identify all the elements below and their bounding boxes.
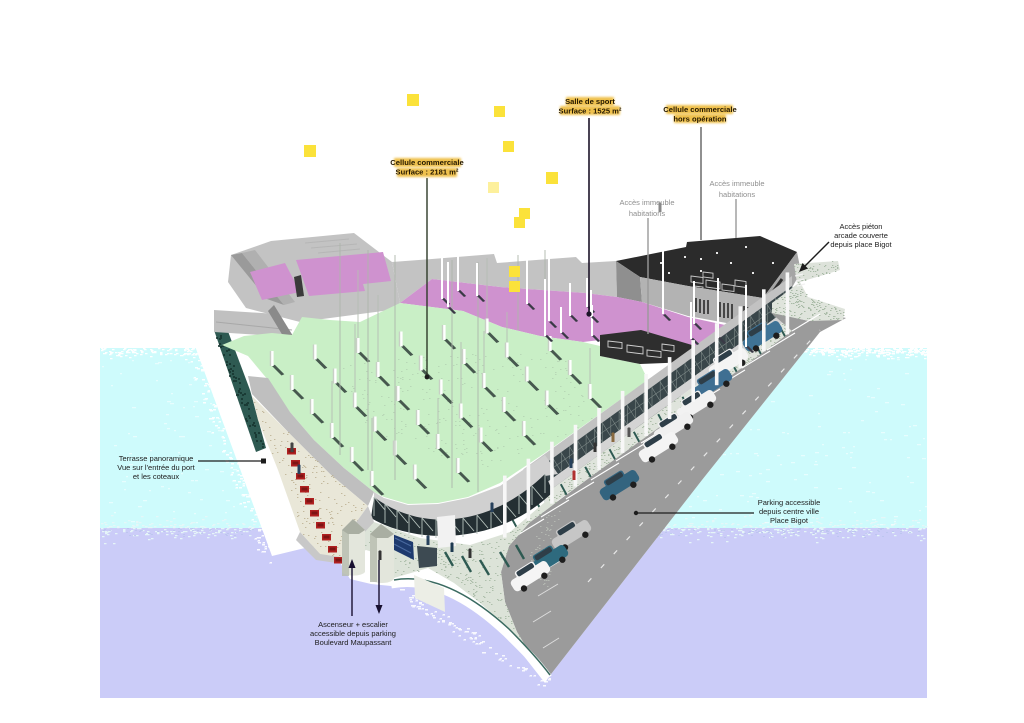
svg-text:Parking accessible: Parking accessible	[758, 498, 821, 507]
svg-text:Salle de sport: Salle de sport	[565, 97, 615, 106]
svg-text:depuis centre ville: depuis centre ville	[759, 507, 819, 516]
svg-text:Accès immeuble: Accès immeuble	[709, 179, 764, 188]
svg-text:Cellule commerciale: Cellule commerciale	[663, 105, 736, 114]
svg-text:Vue sur l'entrée du port: Vue sur l'entrée du port	[117, 463, 195, 472]
svg-text:Surface : 1525 m²: Surface : 1525 m²	[559, 107, 622, 116]
svg-text:Surface : 2181 m²: Surface : 2181 m²	[396, 168, 459, 177]
svg-text:Accès piéton: Accès piéton	[840, 222, 883, 231]
svg-text:Boulevard Maupassant: Boulevard Maupassant	[315, 638, 393, 647]
svg-text:depuis place Bigot: depuis place Bigot	[830, 240, 892, 249]
svg-text:arcade couverte: arcade couverte	[834, 231, 888, 240]
svg-text:Terrasse panoramique: Terrasse panoramique	[119, 454, 194, 463]
svg-text:habitations: habitations	[719, 190, 756, 199]
svg-text:et les coteaux: et les coteaux	[133, 472, 180, 481]
svg-text:Place Bigot: Place Bigot	[770, 516, 809, 525]
svg-text:hors opération: hors opération	[673, 115, 727, 124]
svg-text:accessible depuis parking: accessible depuis parking	[310, 629, 396, 638]
svg-text:Cellule commerciale: Cellule commerciale	[390, 158, 463, 167]
svg-text:Accès immeuble: Accès immeuble	[619, 198, 674, 207]
svg-text:habitations: habitations	[629, 209, 666, 218]
svg-text:Ascenseur + escalier: Ascenseur + escalier	[318, 620, 388, 629]
